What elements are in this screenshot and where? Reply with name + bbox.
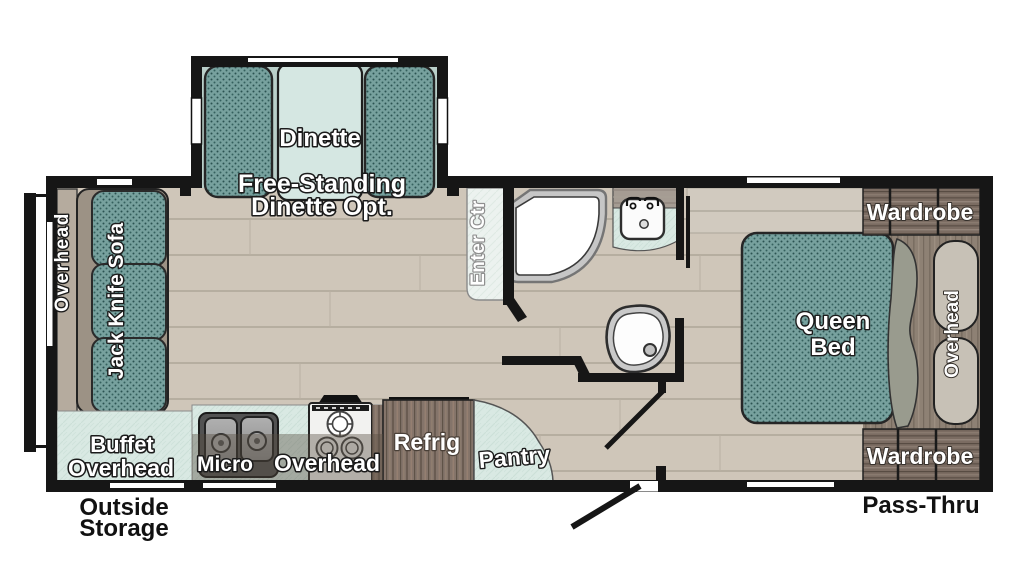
svg-text:Micro: Micro (197, 453, 253, 476)
svg-text:Buffet: Buffet (90, 432, 154, 457)
svg-text:Dinette Opt.: Dinette Opt. (251, 193, 393, 221)
svg-text:Overhead: Overhead (942, 290, 963, 378)
svg-text:Overhead: Overhead (68, 455, 174, 481)
svg-text:Queen: Queen (796, 308, 871, 335)
svg-text:Refrig: Refrig (394, 429, 460, 455)
svg-text:Dinette: Dinette (279, 125, 360, 152)
svg-text:Storage: Storage (79, 515, 168, 542)
svg-text:Enter Ctr: Enter Ctr (468, 200, 489, 286)
svg-text:Overhead: Overhead (274, 450, 380, 476)
svg-text:Wardrobe: Wardrobe (867, 443, 974, 469)
svg-text:Wardrobe: Wardrobe (867, 199, 974, 225)
svg-text:Jack Knife Sofa: Jack Knife Sofa (105, 222, 128, 379)
svg-text:Pass-Thru: Pass-Thru (862, 492, 979, 519)
svg-text:Bed: Bed (810, 334, 855, 361)
svg-text:Overhead: Overhead (52, 212, 73, 312)
